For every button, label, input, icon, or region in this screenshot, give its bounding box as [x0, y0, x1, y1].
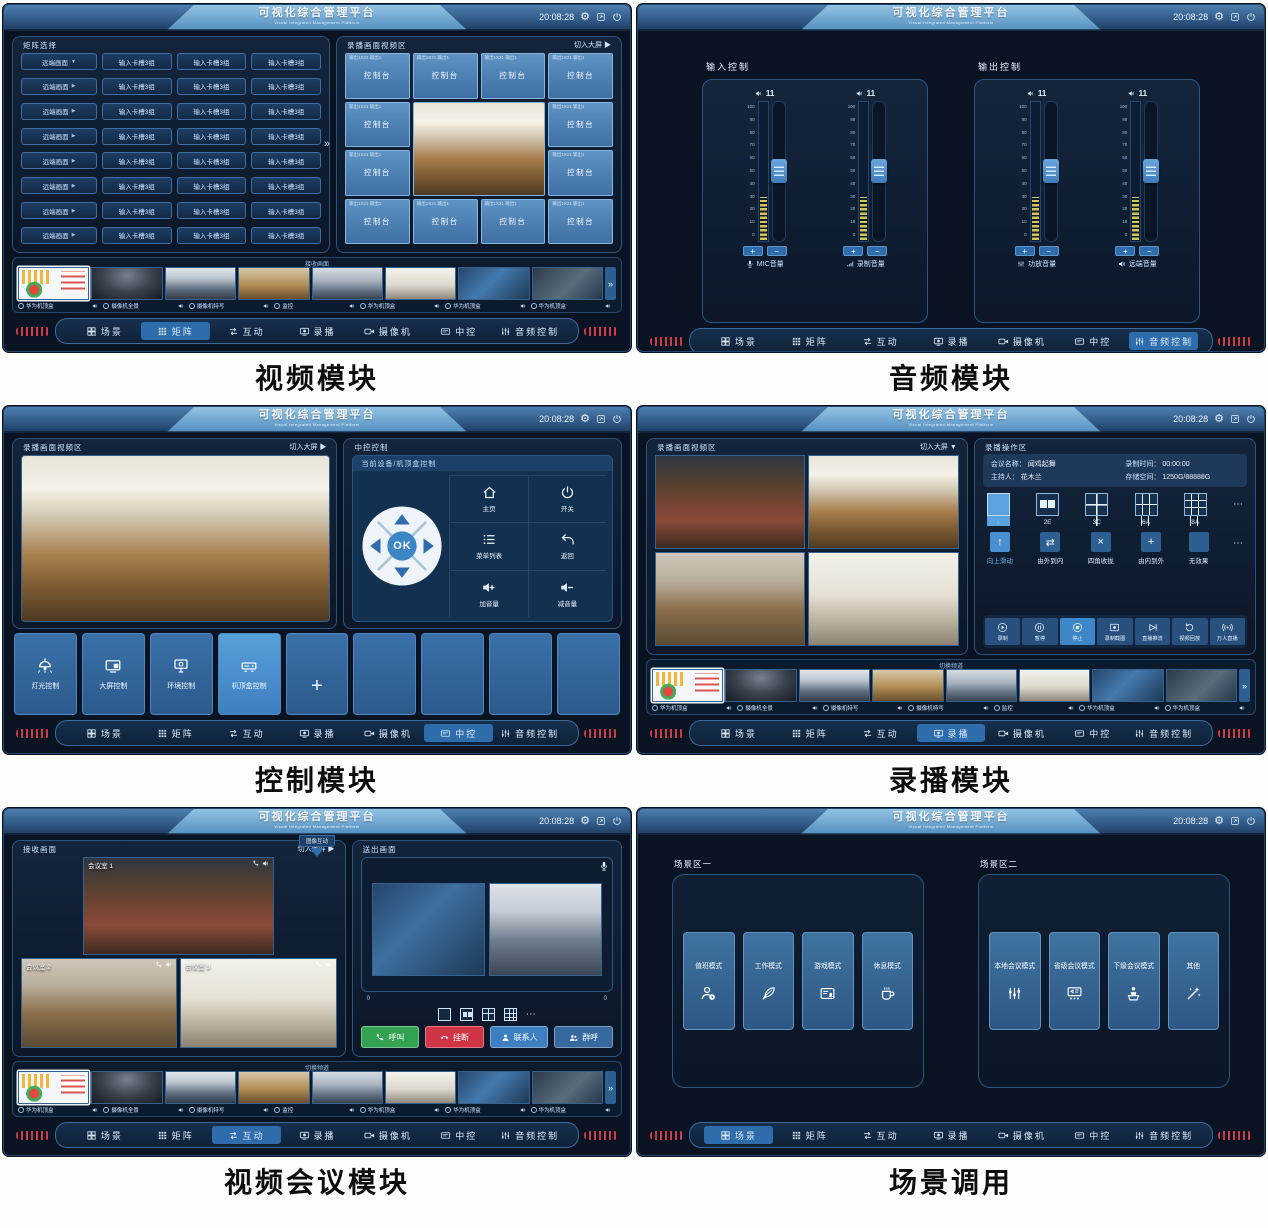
channel-thumbnail[interactable]: [91, 267, 162, 300]
console-tile[interactable]: 输出1X21 输出1 控制台: [548, 53, 613, 99]
control-tile[interactable]: 机顶盒控制: [218, 633, 281, 715]
speaker-icon[interactable]: [434, 303, 440, 309]
transition-option[interactable]: ↑向上滑动: [987, 532, 1013, 565]
settings-gear-icon[interactable]: ⚙: [580, 414, 590, 425]
more-layouts-ellipsis[interactable]: ⋯: [526, 1009, 536, 1020]
slider-handle[interactable]: [771, 159, 787, 183]
nav-item[interactable]: 矩阵: [141, 724, 210, 742]
slider-box: 11 100 90 80 70 60 50 40 30 20 10 0 + −: [974, 79, 1200, 323]
nav-item[interactable]: 录播: [917, 1126, 986, 1144]
nav-item[interactable]: 录播: [283, 724, 352, 742]
nav-item[interactable]: 录播: [283, 322, 352, 340]
volume-plus-button[interactable]: +: [743, 246, 763, 256]
nav-item[interactable]: 中控: [1058, 724, 1127, 742]
speaker-icon[interactable]: [1068, 705, 1074, 711]
speaker-icon[interactable]: [92, 1107, 98, 1113]
nav-item[interactable]: 录播: [917, 724, 986, 742]
settings-gear-icon[interactable]: ⚙: [580, 816, 590, 827]
window-icon[interactable]: [1230, 12, 1240, 22]
console-label: 控制台: [499, 70, 526, 81]
power-icon[interactable]: [612, 12, 622, 22]
window-icon[interactable]: [1230, 816, 1240, 826]
app-subtitle: Visual Integrated Management Platform: [167, 422, 467, 427]
slider-label: 远端音量: [1118, 259, 1157, 269]
scene-mode-card[interactable]: 省级会议模式: [1049, 932, 1101, 1030]
layout-2-icon[interactable]: [460, 1008, 473, 1021]
matrix-slot-button[interactable]: 输入卡槽3组: [102, 152, 172, 169]
transition-option[interactable]: ⇄由外到内: [1037, 532, 1063, 565]
nav-item[interactable]: 场景: [704, 1126, 773, 1144]
playback-button[interactable]: 直播推流: [1135, 618, 1170, 645]
nav-item[interactable]: 中控: [1058, 1126, 1127, 1144]
scene-module-cell: 可视化综合管理平台 Visual Integrated Management P…: [634, 804, 1268, 1206]
conference-module-screen: 可视化综合管理平台 Visual Integrated Management P…: [3, 808, 631, 1156]
matrix-source-button[interactable]: 远端画面▶: [21, 177, 97, 194]
ops-title: 录播操作区: [985, 442, 1028, 453]
nav-item[interactable]: 音频控制: [1129, 1126, 1198, 1144]
nav-item-icon: [1134, 728, 1145, 739]
transition-option[interactable]: 无效果: [1189, 532, 1209, 565]
matrix-source-button[interactable]: 远端画面▶: [21, 152, 97, 169]
app-subtitle: Visual Integrated Management Platform: [801, 422, 1101, 427]
channel-thumbnail[interactable]: [91, 1071, 162, 1104]
matrix-slot-button[interactable]: 输入卡槽3组: [177, 152, 247, 169]
slider-handle[interactable]: [871, 159, 887, 183]
volume-plus-button[interactable]: +: [843, 246, 863, 256]
nav-item[interactable]: 音频控制: [495, 724, 564, 742]
channel-thumbnail[interactable]: [1019, 669, 1090, 702]
channel-thumbnail[interactable]: [532, 1071, 603, 1104]
nav-item[interactable]: 互动: [212, 1126, 281, 1144]
scene-mode-card[interactable]: 下级会议模式: [1108, 932, 1160, 1030]
channel-caption: 监控: [274, 1106, 359, 1114]
channel-thumbnail[interactable]: [18, 267, 89, 300]
device-button[interactable]: 返回: [528, 522, 606, 569]
control-tile[interactable]: [421, 633, 484, 715]
scene-mode-card[interactable]: 休息模式: [862, 932, 914, 1030]
device-button-icon: [560, 532, 575, 547]
transition-option[interactable]: ×四角收拢: [1088, 532, 1114, 565]
layout-option[interactable]: 2E: [1036, 493, 1059, 526]
console-tile[interactable]: 输出1X21 输出1 控制台: [345, 150, 410, 196]
speaker-icon[interactable]: [983, 705, 989, 711]
nav-item[interactable]: 场景: [70, 322, 139, 340]
power-icon[interactable]: [1246, 414, 1256, 424]
call-buttons: 呼叫 挂断 联系人 群呼: [361, 1026, 613, 1048]
speaker-icon[interactable]: [520, 303, 526, 309]
slider-track[interactable]: [772, 101, 786, 242]
send-feed[interactable]: [372, 883, 485, 976]
matrix-slot-button[interactable]: 输入卡槽3组: [251, 53, 321, 70]
console-tile[interactable]: 输出1X21 输出1 控制台: [548, 150, 613, 196]
conference-feed[interactable]: 会议室 2: [21, 958, 177, 1048]
nav-item[interactable]: 矩阵: [141, 322, 210, 340]
nav-item[interactable]: 中控: [424, 724, 493, 742]
channel-thumbnail[interactable]: [946, 669, 1017, 702]
channel-strip: 切换频道 » 华为机顶盒 摄像机全景 摄像机特写: [646, 659, 1256, 715]
matrix-source-button[interactable]: 远端画面▶: [21, 227, 97, 244]
playback-button[interactable]: 录制: [985, 618, 1020, 645]
speaker-icon[interactable]: [165, 961, 172, 968]
app-header: 可视化综合管理平台 Visual Integrated Management P…: [638, 5, 1264, 31]
nav-item[interactable]: 互动: [212, 322, 281, 340]
scene-cards: 本地会议模式 省级会议模式 下级会议模式 其他: [978, 874, 1230, 1088]
camera-feed[interactable]: [808, 552, 958, 646]
nav-item[interactable]: 中控: [424, 1126, 493, 1144]
scene-mode-card[interactable]: 值班模式: [683, 932, 735, 1030]
channel-thumbnail[interactable]: [238, 1071, 309, 1104]
matrix-slot-button[interactable]: 输入卡槽3组: [177, 128, 247, 145]
speaker-icon[interactable]: [434, 1107, 440, 1113]
console-tile[interactable]: 输出1X21 输出1 控制台: [345, 102, 410, 148]
clock: 20:08:28: [539, 12, 574, 22]
matrix-slot-button[interactable]: 输入卡槽3组: [251, 152, 321, 169]
window-icon[interactable]: [596, 12, 606, 22]
volume-minus-button[interactable]: −: [1039, 246, 1059, 256]
slider-label-icon: [846, 260, 854, 268]
nav-item[interactable]: 场景: [70, 1126, 139, 1144]
channel-thumbnail[interactable]: [725, 669, 796, 702]
channel-thumbnail[interactable]: [799, 669, 870, 702]
nav-item[interactable]: 互动: [846, 332, 915, 350]
window-icon[interactable]: [1230, 414, 1240, 424]
speaker-icon[interactable]: [1239, 705, 1245, 711]
volume-plus-button[interactable]: +: [1015, 246, 1035, 256]
call-button[interactable]: 群呼: [554, 1026, 613, 1048]
speaker-icon[interactable]: [897, 705, 903, 711]
playback-button[interactable]: 视频回放: [1172, 618, 1207, 645]
channel-caption: 华为机顶盒: [1079, 704, 1164, 712]
matrix-source-button[interactable]: 远端画面▼: [21, 53, 97, 70]
nav-item[interactable]: 音频控制: [495, 1126, 564, 1144]
channel-caption: 监控: [994, 704, 1079, 712]
nav-item[interactable]: 摄像机: [987, 724, 1056, 742]
console-tile[interactable]: 输出1X21 输出1 控制台: [413, 199, 478, 245]
matrix-slot-button[interactable]: 输入卡槽3组: [102, 103, 172, 120]
room-name: 会议室 1: [88, 860, 113, 870]
matrix-slot-button[interactable]: 输入卡槽3组: [251, 202, 321, 219]
nav-item[interactable]: 摄像机: [987, 332, 1056, 350]
channel-thumbnail[interactable]: [165, 267, 236, 300]
playback-button-icon: [1109, 622, 1120, 633]
power-icon[interactable]: [1246, 816, 1256, 826]
scale-ticks: 100 90 80 70 60 50 40 30 20 10 0: [744, 101, 755, 242]
source-dot-icon: [274, 303, 280, 309]
more-transitions-ellipsis[interactable]: ⋯: [1233, 532, 1243, 549]
matrix-slot-button[interactable]: 输入卡槽3组: [251, 103, 321, 120]
device-button[interactable]: 减音量: [528, 570, 606, 617]
nav-item[interactable]: 互动: [846, 724, 915, 742]
meeting-info: 会议名称： 闻鸡起舞 录制时间： 00:00:00 主持人： 花木兰 存储空间：…: [983, 454, 1247, 487]
input-control-group: 输入控制 11 100 90 80 70 60 50 40 30 20 10 0: [702, 60, 928, 323]
speaker-icon[interactable]: [726, 705, 732, 711]
matrix-source-button[interactable]: 远端画面▶: [21, 128, 97, 145]
power-icon[interactable]: [612, 414, 622, 424]
layout-option[interactable]: 1: [987, 493, 1010, 526]
playback-button[interactable]: 录制截图: [1097, 618, 1132, 645]
speaker-icon[interactable]: [812, 705, 818, 711]
matrix-slot-button[interactable]: 输入卡槽3组: [177, 227, 247, 244]
channel-thumbnail[interactable]: [458, 267, 529, 300]
bottom-navbar: 场景 矩阵 互动 录播 摄像机 中控 音频控制: [12, 719, 622, 751]
layout-1-icon[interactable]: [438, 1008, 451, 1021]
speaker-icon[interactable]: [178, 303, 184, 309]
record-module-screen: 可视化综合管理平台 Visual Integrated Management P…: [637, 406, 1265, 754]
playback-button-icon: [1072, 622, 1083, 633]
volume-slider: 11 100 90 80 70 60 50 40 30 20 10 0 + −: [722, 88, 808, 314]
phone-icon[interactable]: [315, 961, 322, 968]
nav-right-decoration: [584, 729, 618, 738]
volume-plus-button[interactable]: +: [1115, 246, 1135, 256]
source-dot-icon: [908, 705, 914, 711]
matrix-expand-chevron[interactable]: »: [324, 138, 330, 150]
output-label: 输出1X21 输出1: [552, 55, 584, 61]
call-button[interactable]: 呼叫: [361, 1026, 420, 1048]
console-tile[interactable]: 输出1X21 输出1 控制台: [413, 53, 478, 99]
nav-item[interactable]: 音频控制: [495, 322, 564, 340]
control-tile-icon: [172, 657, 190, 675]
scene-mode-card[interactable]: 游戏模式: [802, 932, 854, 1030]
device-buttons-grid: 主页 开关 菜单列表 返回 加音量: [449, 475, 606, 617]
nav-item[interactable]: 录播: [283, 1126, 352, 1144]
nav-item[interactable]: 摄像机: [353, 724, 422, 742]
matrix-source-button[interactable]: 远端画面▶: [21, 78, 97, 95]
console-tile[interactable]: 输出1X21 输出1 控制台: [548, 102, 613, 148]
console-tile[interactable]: 输出1X21 输出1 控制台: [481, 53, 546, 99]
call-button[interactable]: 联系人: [490, 1026, 549, 1048]
matrix-slot-button[interactable]: 输入卡槽3组: [177, 53, 247, 70]
app-subtitle: Visual Integrated Management Platform: [167, 824, 467, 829]
speaker-icon[interactable]: [349, 1107, 355, 1113]
nav-item[interactable]: 场景: [704, 332, 773, 350]
channel-thumbnail[interactable]: [1092, 669, 1163, 702]
strip-next-chevron[interactable]: »: [605, 267, 616, 300]
scene-mode-icon: [819, 985, 836, 1002]
control-tile[interactable]: [489, 633, 552, 715]
matrix-slot-button[interactable]: 输入卡槽3组: [177, 177, 247, 194]
scene-mode-card[interactable]: 其他: [1168, 932, 1220, 1030]
control-tile-icon: [376, 662, 394, 680]
matrix-slot-button[interactable]: 输入卡槽3组: [177, 103, 247, 120]
dpad-control[interactable]: OK: [359, 503, 445, 589]
matrix-slot-button[interactable]: 输入卡槽3组: [251, 78, 321, 95]
matrix-source-button[interactable]: 远端画面▶: [21, 103, 97, 120]
console-label: 控制台: [499, 216, 526, 227]
image-interact-tab[interactable]: 图像互动: [299, 835, 335, 857]
nav-item[interactable]: 摄像机: [987, 1126, 1056, 1144]
window-icon[interactable]: [596, 816, 606, 826]
nav-item-icon: [228, 326, 239, 337]
volume-minus-button[interactable]: −: [867, 246, 887, 256]
send-feed[interactable]: [489, 883, 602, 976]
layout-option[interactable]: 3C: [1085, 493, 1108, 526]
nav-item[interactable]: 录播: [917, 332, 986, 350]
matrix-slot-button[interactable]: 输入卡槽3组: [102, 227, 172, 244]
send-title: 送出画面: [363, 844, 397, 855]
nav-item[interactable]: 矩阵: [775, 1126, 844, 1144]
channel-caption: 监控: [274, 302, 359, 310]
slider-handle[interactable]: [1143, 159, 1159, 183]
speaker-icon[interactable]: [605, 303, 611, 309]
clock: 20:08:28: [1173, 12, 1208, 22]
console-tile[interactable]: 输出1X21 输出1 控制台: [481, 199, 546, 245]
power-icon[interactable]: [1246, 12, 1256, 22]
channel-thumbnail[interactable]: [652, 669, 723, 702]
settings-gear-icon[interactable]: ⚙: [1214, 816, 1224, 827]
window-icon[interactable]: [596, 414, 606, 424]
control-tile[interactable]: +: [286, 633, 349, 715]
speaker-icon[interactable]: [349, 303, 355, 309]
channel-thumbnail[interactable]: [458, 1071, 529, 1104]
phone-icon[interactable]: [155, 961, 162, 968]
switch-to-bigscreen[interactable]: 切入大屏 ▼: [920, 442, 957, 452]
channel-thumbnail[interactable]: [1166, 669, 1237, 702]
console-tile[interactable]: 输出1X21 输出1 控制台: [345, 199, 410, 245]
scene-mode-card[interactable]: 本地会议模式: [989, 932, 1041, 1030]
nav-item[interactable]: 音频控制: [1129, 332, 1198, 350]
channel-thumbnail[interactable]: [165, 1071, 236, 1104]
strip-next-chevron[interactable]: »: [605, 1071, 616, 1104]
nav-item[interactable]: 矩阵: [141, 1126, 210, 1144]
speaker-icon[interactable]: [263, 1107, 269, 1113]
channel-thumbnail[interactable]: [312, 267, 383, 300]
nav-item[interactable]: 互动: [212, 724, 281, 742]
volume-slider: 11 100 90 80 70 60 50 40 30 20 10 0 + −: [994, 88, 1080, 314]
channel-caption: 华为机顶盒: [531, 1106, 616, 1114]
switch-to-bigscreen[interactable]: 切入大屏 ▶: [290, 442, 327, 452]
nav-item[interactable]: 矩阵: [775, 332, 844, 350]
matrix-slot-button[interactable]: 输入卡槽3组: [251, 177, 321, 194]
matrix-slot-button[interactable]: 输入卡槽3组: [102, 128, 172, 145]
nav-item[interactable]: 音频控制: [1129, 724, 1198, 742]
speaker-icon[interactable]: [1154, 705, 1160, 711]
nav-item-icon: [157, 728, 168, 739]
microphone-icon[interactable]: [599, 859, 609, 874]
volume-minus-button[interactable]: −: [767, 246, 787, 256]
channel-thumbnail[interactable]: [312, 1071, 383, 1104]
settings-gear-icon[interactable]: ⚙: [1214, 414, 1224, 425]
layout-9-icon[interactable]: [504, 1008, 517, 1021]
speaker-icon[interactable]: [325, 961, 332, 968]
device-button[interactable]: 开关: [528, 475, 606, 522]
matrix-slot-button[interactable]: 输入卡槽3组: [102, 177, 172, 194]
matrix-slot-button[interactable]: 输入卡槽3组: [102, 53, 172, 70]
room-name: 会议室 2: [26, 961, 51, 971]
device-button[interactable]: 加音量: [449, 570, 527, 617]
channel-thumbnail[interactable]: [532, 267, 603, 300]
slider-track[interactable]: [872, 101, 886, 242]
transition-option[interactable]: +由内到外: [1138, 532, 1164, 565]
power-icon[interactable]: [612, 816, 622, 826]
nav-item[interactable]: 场景: [70, 724, 139, 742]
channel-thumbnail[interactable]: [872, 669, 943, 702]
matrix-slot-button[interactable]: 输入卡槽3组: [102, 78, 172, 95]
record-video-area: 录播画面视频区 切入大屏 ▼: [646, 438, 968, 655]
volume-value: 11: [1038, 89, 1046, 98]
speaker-icon[interactable]: [605, 1107, 611, 1113]
control-tile[interactable]: [353, 633, 416, 715]
matrix-slot-button[interactable]: 输入卡槽3组: [251, 227, 321, 244]
camera-feed[interactable]: [808, 455, 958, 549]
layout-4-icon[interactable]: [482, 1008, 495, 1021]
source-dot-icon: [652, 705, 658, 711]
channel-thumbnail[interactable]: [385, 267, 456, 300]
volume-value: 11: [766, 89, 774, 98]
more-layouts-ellipsis[interactable]: ⋯: [1233, 493, 1243, 510]
switch-to-bigscreen[interactable]: 切入大屏 ▶: [574, 40, 611, 50]
matrix-select-panel: 矩阵选择 远端画面▼ 输入卡槽3组 输入卡槽3组 输入卡槽3组: [12, 36, 330, 253]
speaker-icon[interactable]: [178, 1107, 184, 1113]
speaker-icon[interactable]: [263, 303, 269, 309]
control-tile[interactable]: 灯光控制: [14, 633, 77, 715]
control-tile[interactable]: 大屏控制: [82, 633, 145, 715]
settings-gear-icon[interactable]: ⚙: [580, 12, 590, 23]
speaker-icon[interactable]: [520, 1107, 526, 1113]
speaker-icon[interactable]: [262, 860, 269, 867]
ok-button[interactable]: OK: [359, 503, 445, 589]
matrix-slot-button[interactable]: 输入卡槽3组: [177, 202, 247, 219]
scale-ticks: 100 90 80 70 60 50 40 30 20 10 0: [844, 101, 855, 242]
nav-item[interactable]: 中控: [424, 322, 493, 340]
console-tile[interactable]: 输出1X21 输出1 控制台: [548, 199, 613, 245]
volume-minus-button[interactable]: −: [1139, 246, 1159, 256]
source-dot-icon: [360, 1107, 366, 1113]
settings-gear-icon[interactable]: ⚙: [1214, 12, 1224, 23]
conference-feed[interactable]: 会议室 1: [83, 857, 274, 955]
nav-item[interactable]: 摄像机: [353, 322, 422, 340]
speaker-icon[interactable]: [92, 303, 98, 309]
layout-option[interactable]: 8A: [1184, 493, 1207, 526]
nav-item-icon: [791, 728, 802, 739]
nav-item[interactable]: 矩阵: [775, 724, 844, 742]
nav-item-icon: [998, 728, 1009, 739]
control-tile[interactable]: 环境控制: [150, 633, 213, 715]
channel-thumbnail[interactable]: [238, 267, 309, 300]
nav-item[interactable]: 互动: [846, 1126, 915, 1144]
playback-button[interactable]: 万人直播: [1210, 618, 1245, 645]
console-tile[interactable]: 输出1X21 输出1 控制台: [345, 53, 410, 99]
playback-button[interactable]: 停止: [1060, 618, 1095, 645]
nav-item-icon: [299, 1130, 310, 1141]
slider-track[interactable]: [1144, 101, 1158, 242]
control-tile-icon: [36, 657, 54, 675]
nav-item[interactable]: 场景: [704, 724, 773, 742]
channel-thumbnail[interactable]: [385, 1071, 456, 1104]
control-tile[interactable]: [557, 633, 620, 715]
nav-item[interactable]: 摄像机: [353, 1126, 422, 1144]
conference-feed[interactable]: 会议室 3: [180, 958, 336, 1048]
device-button[interactable]: 菜单列表: [449, 522, 527, 569]
nav-item-icon: [299, 728, 310, 739]
scene-mode-card[interactable]: 工作模式: [743, 932, 795, 1030]
matrix-source-button[interactable]: 远端画面▶: [21, 202, 97, 219]
device-button[interactable]: 主页: [449, 475, 527, 522]
matrix-slot-button[interactable]: 输入卡槽3组: [177, 78, 247, 95]
camera-feed[interactable]: [655, 455, 805, 549]
slider-track[interactable]: [1044, 101, 1058, 242]
strip-next-chevron[interactable]: »: [1239, 669, 1250, 702]
nav-item[interactable]: 中控: [1058, 332, 1127, 350]
layout-option[interactable]: 6A: [1135, 493, 1158, 526]
matrix-slot-button[interactable]: 输入卡槽3组: [102, 202, 172, 219]
slider-handle[interactable]: [1043, 159, 1059, 183]
phone-icon[interactable]: [252, 860, 259, 867]
matrix-slot-button[interactable]: 输入卡槽3组: [251, 128, 321, 145]
call-button[interactable]: 挂断: [425, 1026, 484, 1048]
playback-button[interactable]: 暂停: [1022, 618, 1057, 645]
camera-feed[interactable]: [655, 552, 805, 646]
channel-thumbnail[interactable]: [18, 1071, 89, 1104]
